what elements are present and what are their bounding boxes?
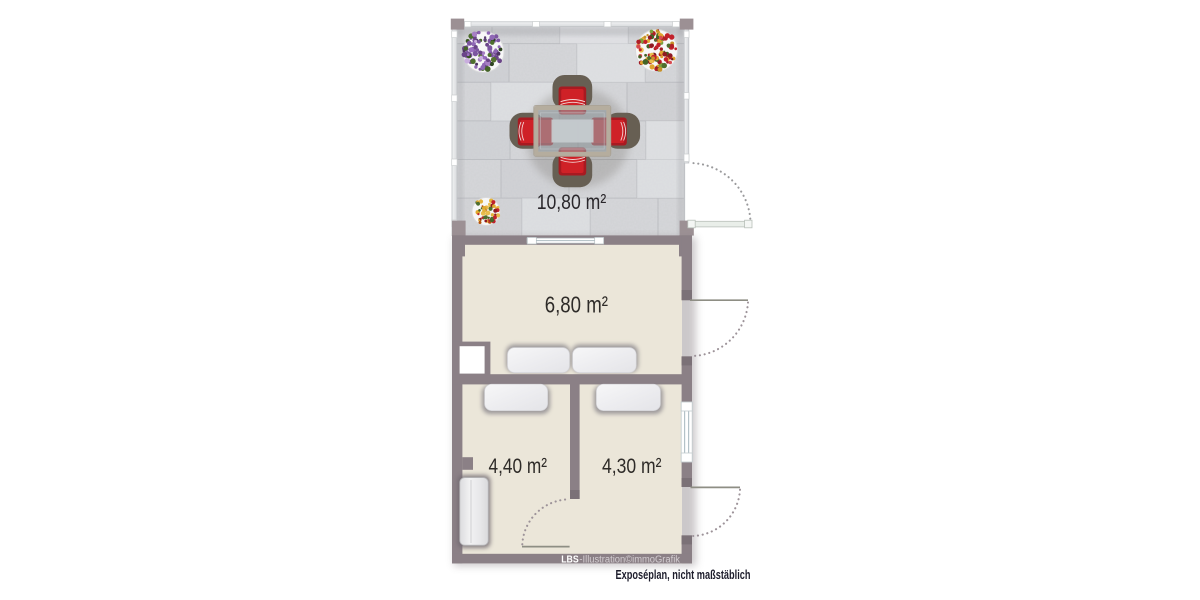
svg-text:10,80 m²: 10,80 m² [537,191,607,214]
svg-text:6,80 m²: 6,80 m² [545,292,608,318]
svg-text:4,40 m²: 4,40 m² [489,454,548,478]
svg-text:-Illustration©immoGrafik: -Illustration©immoGrafik [579,555,681,566]
svg-text:LBS: LBS [561,555,579,566]
svg-text:4,30 m²: 4,30 m² [602,454,662,478]
svg-text:Exposéplan, nicht maßstäblich: Exposéplan, nicht maßstäblich [616,568,751,582]
